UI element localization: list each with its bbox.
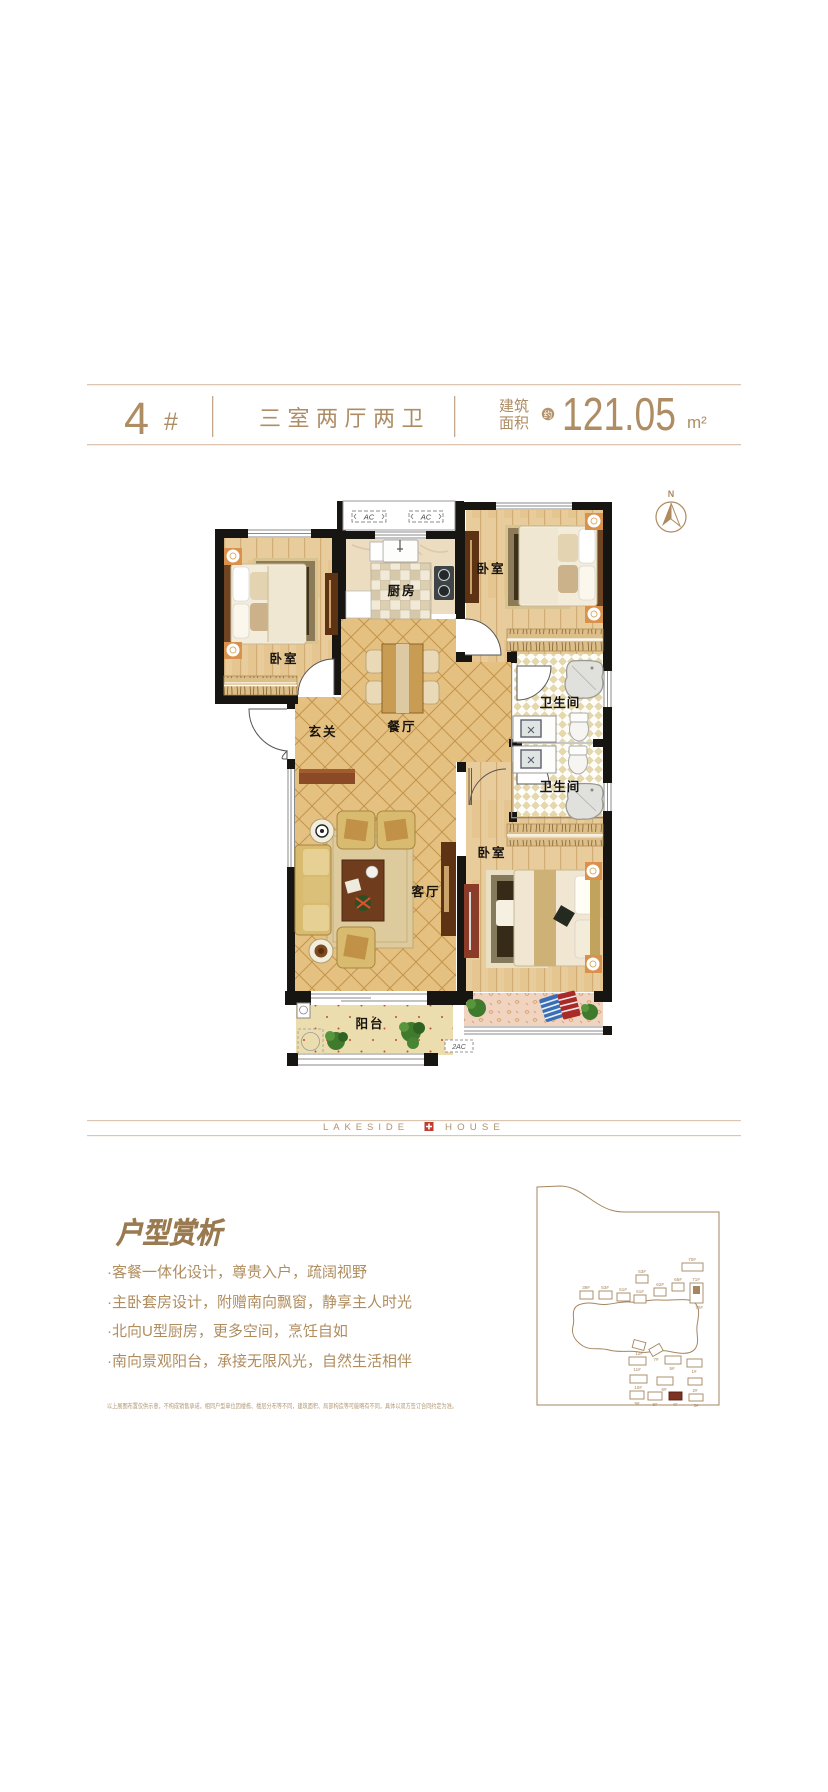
svg-text:卧室: 卧室 [476, 561, 505, 576]
svg-text:卧室: 卧室 [477, 845, 506, 860]
svg-text:4: 4 [124, 393, 149, 444]
svg-text:卫生间: 卫生间 [540, 695, 581, 710]
svg-text:61#: 61# [636, 1289, 644, 1294]
svg-text:面积: 面积 [499, 415, 529, 432]
svg-text:8#: 8# [652, 1402, 658, 1407]
svg-text:厨房: 厨房 [387, 583, 416, 598]
svg-text:5#: 5# [669, 1366, 675, 1371]
svg-text:客厅: 客厅 [410, 884, 440, 899]
svg-text:65#: 65# [674, 1277, 682, 1282]
svg-text:2AC: 2AC [451, 1044, 467, 1051]
svg-text:2#: 2# [692, 1388, 698, 1393]
svg-text:3#: 3# [693, 1403, 699, 1408]
svg-text:#: # [164, 408, 178, 436]
svg-text:71#: 71# [692, 1277, 700, 1282]
svg-text:LAKESIDE: LAKESIDE [323, 1122, 409, 1133]
svg-text:10#: 10# [634, 1385, 642, 1390]
svg-text:·主卧套房设计，附赠南向飘窗，静享主人时光: ·主卧套房设计，附赠南向飘窗，静享主人时光 [107, 1293, 412, 1311]
svg-text:阳台: 阳台 [355, 1016, 384, 1031]
svg-text:户型赏析: 户型赏析 [115, 1217, 226, 1250]
svg-text:51#: 51# [619, 1287, 627, 1292]
svg-text:AC: AC [420, 513, 432, 522]
svg-text:HOUSE: HOUSE [445, 1122, 505, 1133]
svg-text:121.05: 121.05 [562, 388, 676, 440]
svg-text:三室两厅两卫: 三室两厅两卫 [259, 406, 430, 431]
svg-text:·客餐一体化设计，尊贵入户，疏阔视野: ·客餐一体化设计，尊贵入户，疏阔视野 [107, 1264, 367, 1281]
svg-text:以上展图布置仅供示意，不构成销售承诺，相同户型单位因楼栋、楼: 以上展图布置仅供示意，不构成销售承诺，相同户型单位因楼栋、楼层分布等不同，建筑面… [107, 1401, 457, 1410]
svg-text:11#: 11# [633, 1367, 641, 1372]
svg-text:·南向景观阳台，承接无限风光，自然生活相伴: ·南向景观阳台，承接无限风光，自然生活相伴 [107, 1353, 412, 1370]
svg-text:7#: 7# [653, 1357, 659, 1362]
svg-text:·北向U型厨房，更多空间，烹饪自如: ·北向U型厨房，更多空间，烹饪自如 [107, 1322, 348, 1340]
svg-text:m²: m² [687, 413, 707, 432]
svg-text:N: N [668, 489, 675, 499]
svg-text:4#: 4# [672, 1402, 678, 1407]
svg-text:约: 约 [544, 410, 553, 420]
svg-text:63#: 63# [638, 1269, 646, 1274]
svg-text:6#: 6# [661, 1387, 667, 1392]
svg-text:12#: 12# [635, 1351, 643, 1356]
svg-text:建筑: 建筑 [499, 398, 529, 415]
svg-text:餐厅: 餐厅 [386, 719, 416, 734]
svg-text:72#: 72# [695, 1305, 703, 1310]
svg-text:62#: 62# [656, 1282, 664, 1287]
svg-text:70#: 70# [688, 1257, 696, 1262]
svg-text:1#: 1# [691, 1369, 697, 1374]
svg-text:卧室: 卧室 [269, 651, 298, 666]
svg-text:玄关: 玄关 [308, 724, 337, 739]
svg-text:AC: AC [363, 513, 375, 522]
svg-text:卫生间: 卫生间 [540, 779, 581, 794]
svg-text:53#: 53# [601, 1285, 609, 1290]
svg-text:9#: 9# [634, 1401, 640, 1406]
svg-text:39#: 39# [582, 1285, 590, 1290]
